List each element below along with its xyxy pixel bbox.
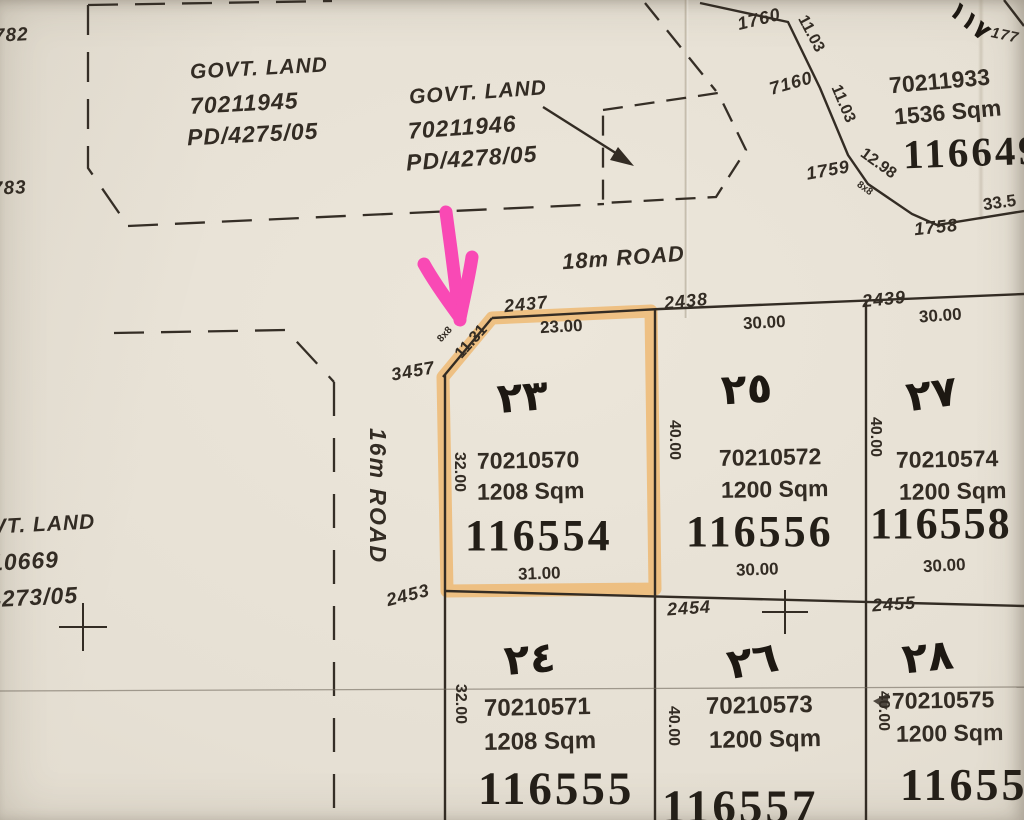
govt-land-1-parcel: 70211945 bbox=[189, 89, 299, 118]
dim-116557-left: 40.00 bbox=[665, 706, 681, 746]
govt-land-3-ref: 4273/05 bbox=[0, 584, 79, 612]
grid-cross-1 bbox=[762, 590, 808, 634]
govt-land-2-arrowhead-icon bbox=[610, 147, 634, 166]
dim-335: 33.5 bbox=[982, 192, 1017, 213]
dim-116556-left: 40.00 bbox=[666, 420, 682, 460]
road-16m-label: 16m ROAD bbox=[366, 428, 389, 564]
dim-116558-top: 30.00 bbox=[918, 306, 962, 326]
plot-116555-parcel: 70210571 bbox=[484, 695, 591, 721]
plot-116555-cert: 116555 bbox=[478, 766, 634, 813]
plot-116556-area: 1200 Sqm bbox=[721, 477, 829, 502]
dashed-diagonal-north bbox=[645, 3, 716, 91]
govt-land-3-title: VT. LAND bbox=[0, 511, 96, 537]
divider-row bbox=[445, 591, 1024, 606]
grid-cross-2 bbox=[59, 603, 107, 651]
dim-11655-left: 40.00 bbox=[875, 691, 891, 731]
neighbor-cert: 116649 bbox=[902, 130, 1024, 176]
dashed-boundary-mid bbox=[114, 330, 334, 382]
plot-116554-area: 1208 Sqm bbox=[477, 479, 585, 504]
plot-116557-arabic-no: ٢٦ bbox=[724, 636, 782, 686]
plot-116558-cert: 116558 bbox=[870, 502, 1012, 546]
corner-2454: 2454 bbox=[666, 597, 711, 618]
plot-116557-cert: 116557 bbox=[662, 784, 818, 820]
plot-116555-area: 1208 Sqm bbox=[484, 729, 596, 755]
dim-116554-left: 32.00 bbox=[451, 452, 467, 492]
plot-116558-arabic-no: ٢٧ bbox=[903, 370, 960, 419]
plot-116556-cert: 116556 bbox=[686, 510, 834, 554]
corner-2455: 2455 bbox=[871, 593, 916, 614]
dim-116556-top: 30.00 bbox=[743, 313, 786, 332]
plot-116556-parcel: 70210572 bbox=[719, 445, 822, 470]
dim-116554-top: 23.00 bbox=[540, 317, 583, 336]
dashed-boundary-north bbox=[88, 1, 332, 5]
corner-782: 782 bbox=[0, 25, 29, 46]
survey-map: 782 783 GOVT. LAND 70211945 PD/4275/05 G… bbox=[0, 0, 1024, 820]
pink-arrow-right-wing bbox=[460, 257, 472, 318]
corner-2437: 2437 bbox=[503, 293, 549, 316]
govt-land-3-parcel: 10669 bbox=[0, 548, 60, 575]
dim-116554-bottom: 31.00 bbox=[518, 564, 561, 582]
plot-11655-cert: 11655 bbox=[900, 762, 1024, 808]
plot-116558-parcel: 70210574 bbox=[896, 447, 999, 472]
dim-116555-left: 32.00 bbox=[452, 684, 468, 724]
paper-crease-horizontal bbox=[0, 687, 1024, 691]
dim-116556-bottom: 30.00 bbox=[736, 560, 779, 578]
corner-2438: 2438 bbox=[663, 290, 709, 313]
corner-783: 783 bbox=[0, 178, 27, 199]
plot-11655-parcel: 70210575 bbox=[892, 688, 995, 713]
plot-116554-arabic-no: ٢٣ bbox=[495, 374, 550, 420]
dim-116558-bottom: 30.00 bbox=[923, 556, 966, 575]
plot-116556-arabic-no: ٢٥ bbox=[720, 367, 773, 412]
govt-land-2-arrow-line bbox=[543, 107, 622, 157]
plot-116554-cert: 116554 bbox=[465, 514, 613, 558]
plot-116554-parcel: 70210570 bbox=[477, 448, 580, 473]
boundary-top-right-corner bbox=[1004, 0, 1024, 26]
dashed-boundary-west-upper bbox=[88, 5, 128, 226]
plot-116557-parcel: 70210573 bbox=[706, 693, 813, 719]
plot-11655-area: 1200 Sqm bbox=[896, 721, 1004, 746]
corner-2439: 2439 bbox=[861, 288, 907, 311]
corner-1758: 1758 bbox=[913, 216, 959, 239]
dashed-plot-outline-center bbox=[603, 93, 746, 203]
plot-11655-arabic-no: ٢٨ bbox=[900, 633, 955, 680]
dashed-boundary-road18-north bbox=[128, 204, 604, 226]
plot-116557-area: 1200 Sqm bbox=[709, 727, 821, 753]
plot-116555-arabic-no: ٢٤ bbox=[502, 636, 557, 682]
dim-116558-left: 40.00 bbox=[867, 417, 883, 457]
